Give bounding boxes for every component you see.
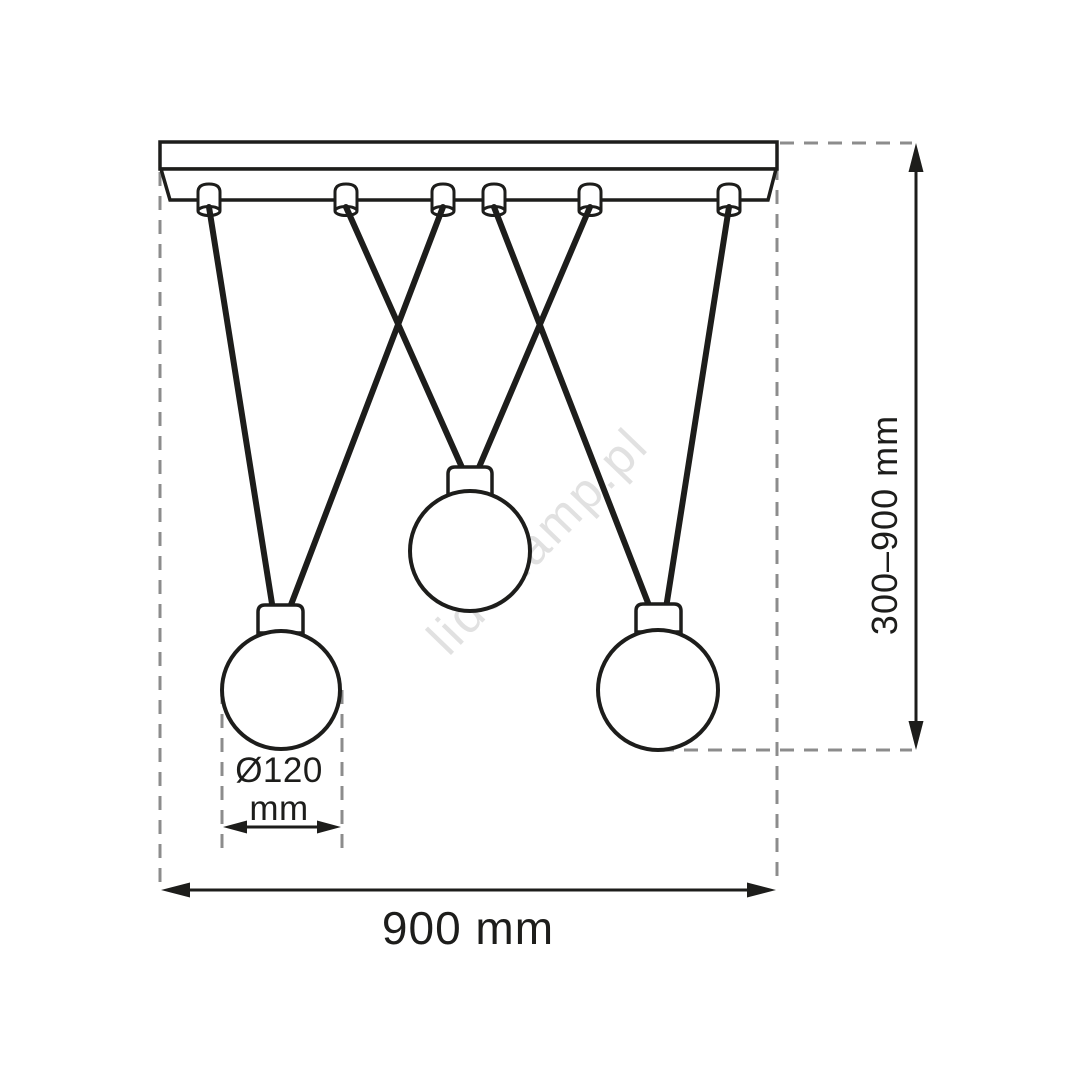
mounting-bar xyxy=(160,142,777,200)
socket-left xyxy=(258,605,303,633)
socket-right xyxy=(636,604,681,632)
globe-left xyxy=(222,631,340,749)
mounting-bar-top xyxy=(160,142,777,169)
diameter-label-unit: mm xyxy=(249,789,308,828)
globe-right xyxy=(598,630,718,750)
lamp-dimension-diagram: liderlamp.pl 900 mm 300–900 mm xyxy=(0,0,1080,1080)
height-label: 300–900 mm xyxy=(864,415,905,635)
mounting-bar-body xyxy=(161,169,776,200)
width-label: 900 mm xyxy=(382,902,554,954)
globe-middle xyxy=(410,491,530,611)
diagram-canvas: liderlamp.pl 900 mm 300–900 mm xyxy=(0,0,1080,1080)
diameter-label-value: Ø120 xyxy=(235,751,323,790)
